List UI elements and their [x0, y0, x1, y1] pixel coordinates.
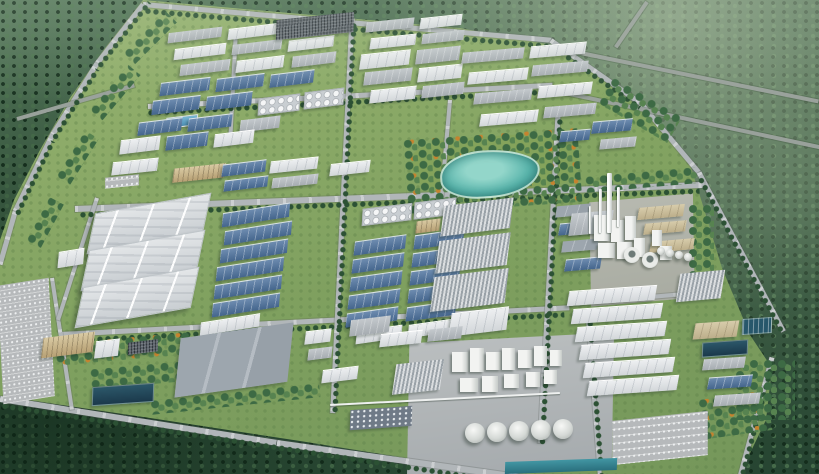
plant-structure [460, 378, 478, 392]
building-blue-roof [221, 159, 266, 177]
structures-layer [0, 0, 819, 474]
water-channel [505, 458, 617, 474]
building-gray-roof [531, 60, 589, 76]
building-gray-roof [421, 30, 464, 45]
building-blue-roof [591, 118, 633, 134]
building-gray-roof [543, 103, 597, 119]
building-white-roof [174, 43, 227, 61]
building-gray-roof [307, 346, 332, 360]
building-white-roof [304, 328, 331, 344]
building-gray-roof [427, 326, 463, 342]
building-blue-roof [137, 117, 182, 136]
chimney [599, 189, 602, 233]
building-gray-roof [291, 51, 336, 68]
storage-silo [675, 251, 683, 259]
tank-farm [304, 87, 345, 109]
storage-silo [553, 419, 573, 439]
chimney [607, 173, 612, 233]
building-blue-roof [165, 131, 208, 150]
building-white-roof [537, 82, 593, 99]
building-blue-roof [159, 77, 210, 96]
building-blue-roof [205, 91, 252, 111]
building-white-roof [529, 41, 587, 58]
building-white-roof [57, 248, 84, 268]
plant-structure [652, 230, 662, 246]
lake [438, 147, 541, 202]
building-blue-roof [559, 129, 591, 143]
storage-silo [657, 247, 665, 255]
building-striped-roof [392, 359, 444, 395]
building-white-roof [479, 109, 539, 126]
building-blue-roof [269, 69, 314, 88]
building-white-roof [329, 160, 371, 176]
building-blue-roof [564, 256, 602, 271]
building-gray-roof [365, 17, 414, 32]
chimney [617, 187, 620, 227]
building-white-roof [369, 85, 417, 103]
building-white-roof [111, 157, 159, 175]
building-gray-roof [415, 46, 461, 65]
building-white-roof [227, 23, 278, 40]
plant-structure [482, 376, 498, 392]
storage-silo [465, 423, 485, 443]
equipment-yard [276, 12, 354, 40]
building-gray-roof [168, 27, 223, 44]
building-gray-roof [271, 173, 318, 188]
retention-pond [702, 339, 748, 357]
storage-silo [487, 422, 507, 442]
storage-silo [531, 420, 551, 440]
building-white-roof [119, 135, 160, 154]
plant-building [643, 220, 687, 235]
building-gray-roof [179, 59, 230, 76]
building-white-roof [321, 366, 358, 384]
building-gray-roof [599, 136, 636, 149]
building-white-roof [94, 338, 120, 358]
storage-silo [666, 249, 674, 257]
building-gray-roof [473, 88, 533, 104]
equipment-yard [128, 339, 158, 355]
building-blue-roof [707, 374, 753, 389]
parking-deck [350, 406, 413, 430]
building-blue-roof [151, 95, 200, 115]
pipe-rack [330, 392, 560, 406]
tank-farm [362, 203, 413, 226]
building-white-roof [567, 285, 657, 306]
building-gray-roof [461, 47, 525, 64]
building-gray-roof [421, 82, 464, 99]
plant-structure [502, 348, 515, 370]
building-white-roof [269, 156, 318, 173]
parking-lot [612, 411, 707, 465]
cooling-tower [624, 247, 640, 263]
building-gray-roof [713, 392, 761, 406]
office-building [172, 163, 226, 183]
plant-structure [544, 370, 557, 384]
building-white-roof [359, 49, 411, 70]
building-gray-roof [363, 67, 413, 85]
building-striped-roof [676, 270, 725, 302]
building-dark-roof [174, 322, 293, 397]
cooling-tower [642, 252, 658, 268]
plant-structure [550, 350, 562, 366]
storage-silo [684, 253, 692, 261]
plant-building [693, 320, 740, 339]
building-white-roof [235, 55, 284, 73]
building-white-roof [417, 64, 463, 83]
building-gray-roof [232, 39, 283, 55]
plant-structure [526, 372, 540, 387]
chimney [589, 206, 591, 234]
plant-building [637, 204, 685, 220]
retention-pond [92, 383, 155, 406]
plant-structure [504, 374, 519, 388]
plant-structure [486, 352, 501, 370]
plant-structure [625, 216, 636, 240]
building-gray-roof [702, 356, 746, 370]
building-white-roof [587, 375, 679, 397]
building-white-roof [213, 129, 254, 147]
industrial-park-aerial-render [0, 0, 819, 474]
plant-structure [534, 346, 547, 366]
treatment-pools [742, 317, 772, 335]
building-blue-roof [215, 73, 264, 92]
plant-structure [470, 348, 484, 372]
tank-farm [258, 93, 301, 115]
building-white-roof [419, 14, 462, 30]
building-white-roof [369, 33, 416, 49]
building-white-roof [467, 67, 529, 84]
parking-lot [105, 174, 139, 189]
storage-silo [509, 421, 529, 441]
plant-structure [518, 350, 532, 368]
plant-structure [598, 243, 615, 258]
building-blue-roof [223, 175, 268, 192]
plant-structure [452, 352, 468, 372]
